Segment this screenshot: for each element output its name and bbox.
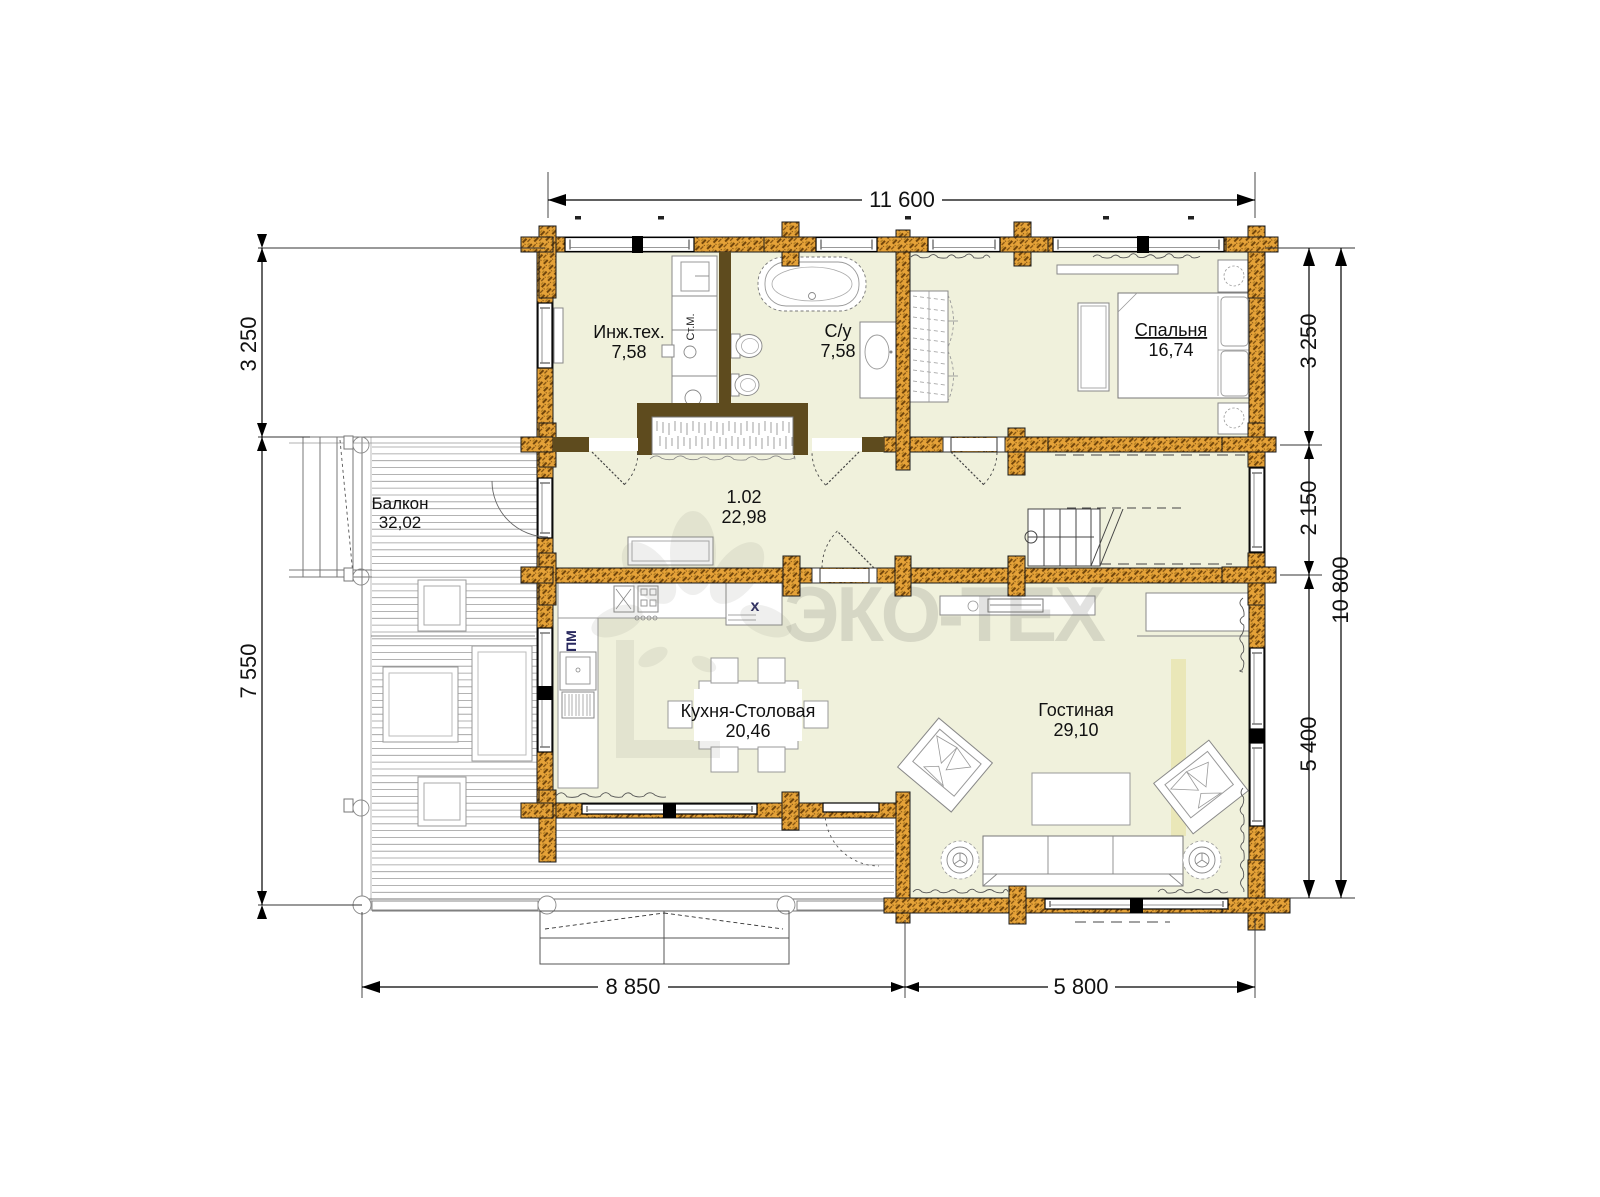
svg-text:ПМ: ПМ [563, 630, 579, 652]
svg-text:20,46: 20,46 [725, 721, 770, 741]
svg-text:10 800: 10 800 [1328, 556, 1353, 623]
svg-text:Инж.тех.: Инж.тех. [593, 322, 665, 342]
svg-text:22,98: 22,98 [721, 507, 766, 527]
svg-text:Кухня-Столовая: Кухня-Столовая [681, 701, 816, 721]
svg-text:32,02: 32,02 [379, 513, 422, 532]
svg-text:1.02: 1.02 [726, 487, 761, 507]
svg-text:7,58: 7,58 [611, 342, 646, 362]
svg-text:5 800: 5 800 [1053, 974, 1108, 999]
svg-text:11 600: 11 600 [869, 187, 935, 212]
svg-text:29,10: 29,10 [1053, 720, 1098, 740]
svg-text:8 850: 8 850 [605, 974, 660, 999]
svg-text:С/у: С/у [825, 321, 852, 341]
svg-text:Ст.М.: Ст.М. [685, 313, 697, 340]
svg-text:16,74: 16,74 [1148, 340, 1193, 360]
svg-text:2 150: 2 150 [1296, 480, 1321, 535]
svg-text:Гостиная: Гостиная [1038, 700, 1114, 720]
svg-text:Спальня: Спальня [1135, 320, 1207, 340]
svg-text:7 550: 7 550 [236, 643, 261, 698]
svg-text:Балкон: Балкон [371, 494, 428, 513]
svg-text:3 250: 3 250 [1296, 313, 1321, 368]
svg-text:5 400: 5 400 [1296, 716, 1321, 771]
svg-text:7,58: 7,58 [820, 341, 855, 361]
svg-text:3 250: 3 250 [236, 316, 261, 371]
